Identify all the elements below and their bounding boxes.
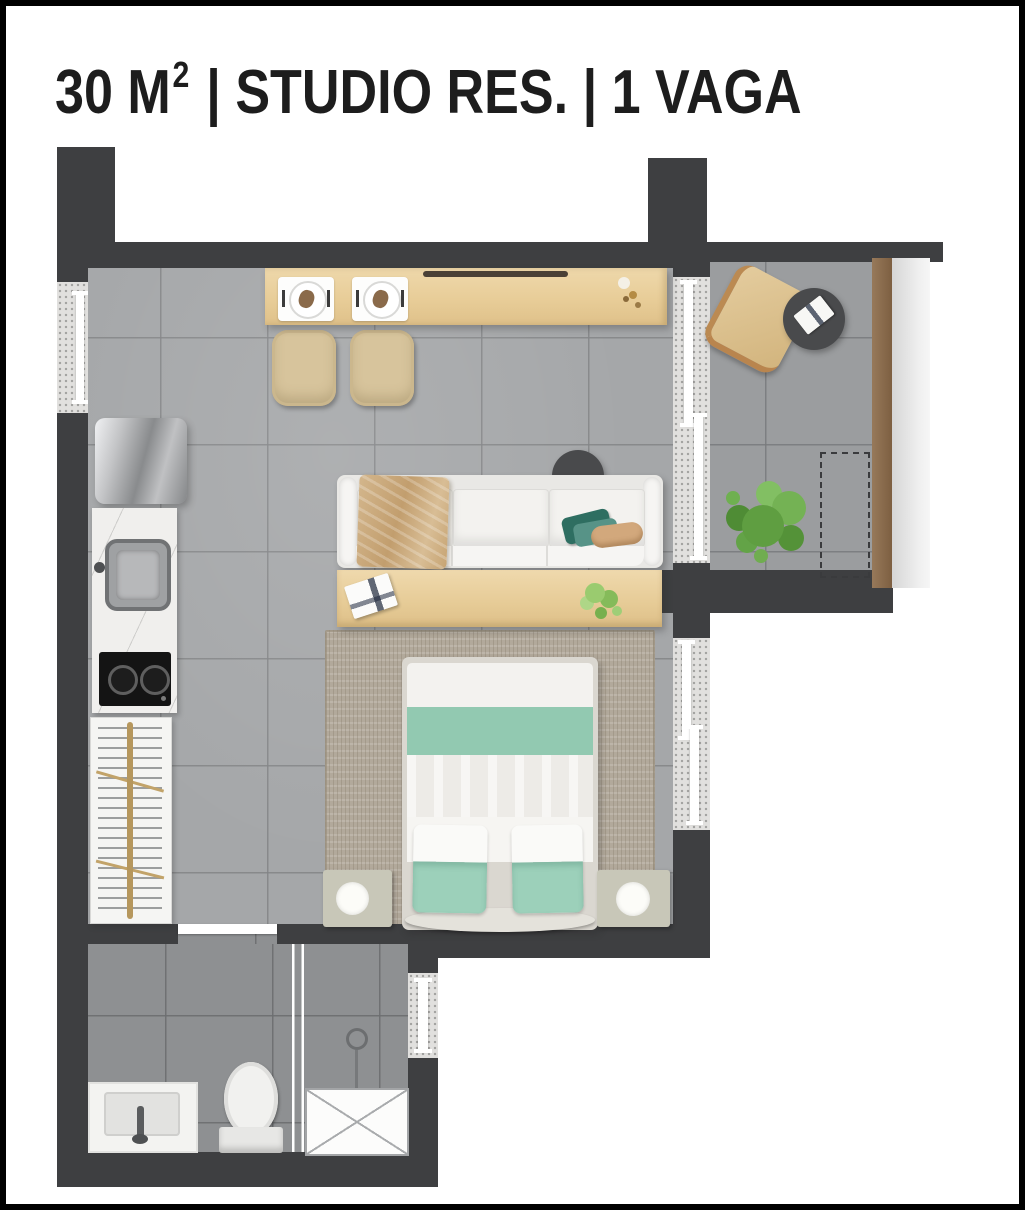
lamp-left <box>336 882 369 915</box>
balcony-railing-glass <box>892 258 930 588</box>
balcony-door-sash-1 <box>684 281 693 426</box>
kitchen-faucet <box>94 562 105 573</box>
flower-bloom <box>618 277 630 289</box>
cooktop-burner-left <box>108 665 138 695</box>
kitchen-window <box>57 282 88 413</box>
title-area: 30 M <box>55 58 171 127</box>
sofa-arm-left <box>339 477 357 566</box>
bathroom-door-sash <box>418 979 428 1052</box>
dining-chair-left <box>272 330 336 406</box>
cooktop-burner-right <box>140 665 170 695</box>
throw-blanket <box>356 474 449 569</box>
balcony-sliding-door <box>673 277 710 563</box>
bed-duvet-mid <box>407 755 593 817</box>
wall-bath-top-right <box>277 924 408 944</box>
counter-flower-decor <box>615 276 643 310</box>
wall-top-left-corner <box>57 147 115 268</box>
cutlery-right-a <box>356 290 359 307</box>
vanity-counter <box>88 1082 198 1153</box>
title-rest: | STUDIO RES. | 1 VAGA <box>192 58 802 127</box>
shower-arm <box>355 1048 358 1090</box>
wall-left-stub <box>57 268 88 282</box>
pillow-left-white <box>413 824 488 863</box>
balcony-plant <box>742 505 784 547</box>
shower-glass-partition <box>292 944 304 1152</box>
place-setting-right <box>352 277 408 321</box>
bathroom-sliding-door-track <box>178 924 277 934</box>
floor-plan-image: 30 M2 | STUDIO RES. | 1 VAGA <box>0 0 1025 1210</box>
kitchen-sink-basin <box>116 550 160 600</box>
console-plant <box>585 583 605 603</box>
wall-top <box>115 242 707 268</box>
cooktop <box>99 652 171 706</box>
page-title: 30 M2 | STUDIO RES. | 1 VAGA <box>55 40 802 128</box>
title-area-exponent: 2 <box>172 54 189 95</box>
vanity-faucet-base <box>132 1134 148 1144</box>
cutlery-left-b <box>327 290 330 307</box>
kitchen-window-sash <box>76 292 84 403</box>
sofa-cushion-2 <box>453 489 549 547</box>
drying-rack <box>90 717 172 924</box>
refrigerator <box>95 418 187 504</box>
toilet-bowl <box>224 1062 278 1136</box>
shower-head <box>346 1028 368 1050</box>
wall-bath-bottom <box>57 1152 438 1187</box>
toilet-tank <box>219 1127 283 1153</box>
bathroom-door-floor-patch <box>178 934 277 944</box>
bed-pillow-left <box>412 824 488 913</box>
sofa-arm-right <box>643 477 661 566</box>
pillow-right-teal <box>512 861 584 913</box>
bedroom-window <box>673 638 710 830</box>
wall-bath-top-left <box>88 924 178 944</box>
balcony-railing-wood-sill <box>872 258 892 588</box>
balcony-planter-outline <box>820 452 870 578</box>
shower-box <box>305 1088 409 1156</box>
dining-chair-right <box>350 330 414 406</box>
lamp-right <box>616 882 650 916</box>
bedroom-window-sash-2 <box>690 726 699 824</box>
bed-teal-stripe <box>407 707 593 755</box>
place-setting-left <box>278 277 334 321</box>
counter-shelf-line <box>423 271 568 277</box>
wall-right-upper <box>673 242 710 277</box>
balcony-door-sash-2 <box>694 414 703 559</box>
kitchen-sink <box>105 539 171 611</box>
bed-pillow-right <box>511 824 584 913</box>
cutlery-right-b <box>401 290 404 307</box>
cutlery-left-a <box>282 290 285 307</box>
wall-left <box>57 413 88 1187</box>
bathroom-door-marker <box>408 973 438 1058</box>
wall-column-top <box>648 158 707 242</box>
bed-duvet-top <box>407 663 593 707</box>
pillow-left-teal <box>412 861 487 913</box>
pillow-right-white <box>511 824 583 863</box>
drying-rack-rod <box>127 722 133 919</box>
cooktop-knob <box>161 696 166 701</box>
